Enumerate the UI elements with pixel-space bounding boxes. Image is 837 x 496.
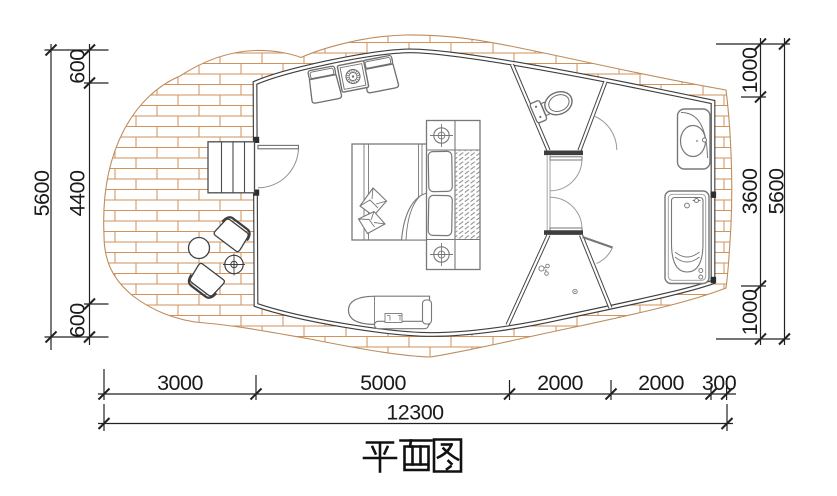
svg-text:300: 300 — [702, 371, 737, 395]
svg-text:2000: 2000 — [537, 371, 583, 395]
svg-text:2000: 2000 — [638, 371, 684, 395]
svg-text:5000: 5000 — [360, 371, 406, 395]
svg-text:600: 600 — [66, 49, 90, 84]
svg-text:5600: 5600 — [30, 170, 54, 216]
svg-text:4400: 4400 — [66, 170, 90, 216]
svg-text:12300: 12300 — [386, 401, 444, 425]
svg-text:3000: 3000 — [157, 371, 203, 395]
svg-text:5600: 5600 — [765, 168, 789, 214]
svg-text:600: 600 — [66, 303, 90, 338]
svg-text:1000: 1000 — [738, 289, 762, 335]
svg-text:3600: 3600 — [738, 168, 762, 214]
svg-text:1000: 1000 — [738, 47, 762, 93]
